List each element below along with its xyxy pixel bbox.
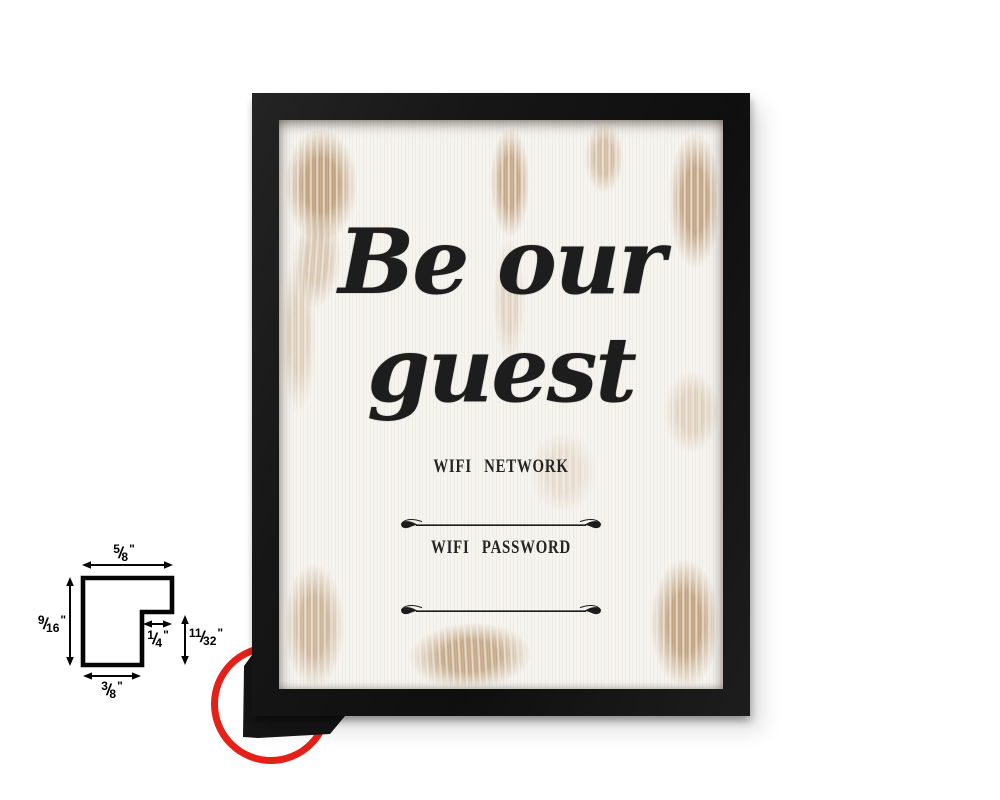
arrowhead-icon [143, 620, 152, 627]
distress-patch [578, 120, 630, 205]
flourish-divider-password [398, 604, 604, 618]
dimension-label-bottom-width: 3/8" [101, 679, 123, 701]
arrowhead-icon [164, 561, 173, 569]
arrowhead-icon [181, 615, 189, 624]
flourish-divider-network [398, 518, 604, 532]
arrowhead-icon [132, 672, 141, 679]
fraction-denominator: 32 [203, 634, 216, 648]
molding-outline [83, 578, 172, 665]
arrowhead-icon [82, 561, 91, 569]
dimension-label-left-height: 9/16" [38, 613, 66, 635]
inch-mark: " [129, 542, 135, 556]
arrowhead-icon [181, 656, 189, 665]
wifi-password-label: WIFI PASSWORD [328, 537, 674, 559]
arrowhead-icon [66, 577, 74, 586]
distress-patch [387, 608, 553, 689]
fraction-denominator: 8 [109, 687, 116, 701]
arrowhead-icon [83, 672, 92, 679]
wifi-network-label: WIFI NETWORK [328, 456, 674, 478]
quote-line-2: guest [279, 316, 723, 424]
distress-patch [279, 543, 354, 689]
fraction-denominator: 4 [155, 636, 162, 650]
dimension-label-top-width: 5/8" [113, 542, 135, 564]
fraction-denominator: 8 [121, 550, 128, 564]
inch-mark: " [217, 626, 223, 640]
fraction-denominator: 16 [46, 621, 59, 635]
arrowhead-icon [66, 657, 74, 666]
frame-profile-diagram: 5/8" 9/16" 1/4" 11/32" 3/8" [28, 540, 243, 715]
inch-mark: " [163, 628, 169, 642]
picture-frame: Be our guest WIFI NETWORK WIFI PASSWORD [252, 93, 750, 716]
sign-print: Be our guest WIFI NETWORK WIFI PASSWORD [279, 120, 723, 689]
dimension-label-rabbet-width: 1/4" [147, 628, 169, 650]
product-photo: 5/8" 9/16" 1/4" 11/32" 3/8" [0, 0, 1000, 800]
arrowhead-icon [163, 620, 172, 627]
dimension-label-right-height: 11/32" [189, 626, 223, 648]
inch-mark: " [60, 613, 66, 627]
quote-line-1: Be our [279, 208, 723, 316]
distress-patch [639, 538, 723, 689]
quote-text: Be our guest [279, 208, 723, 424]
inch-mark: " [117, 679, 123, 693]
